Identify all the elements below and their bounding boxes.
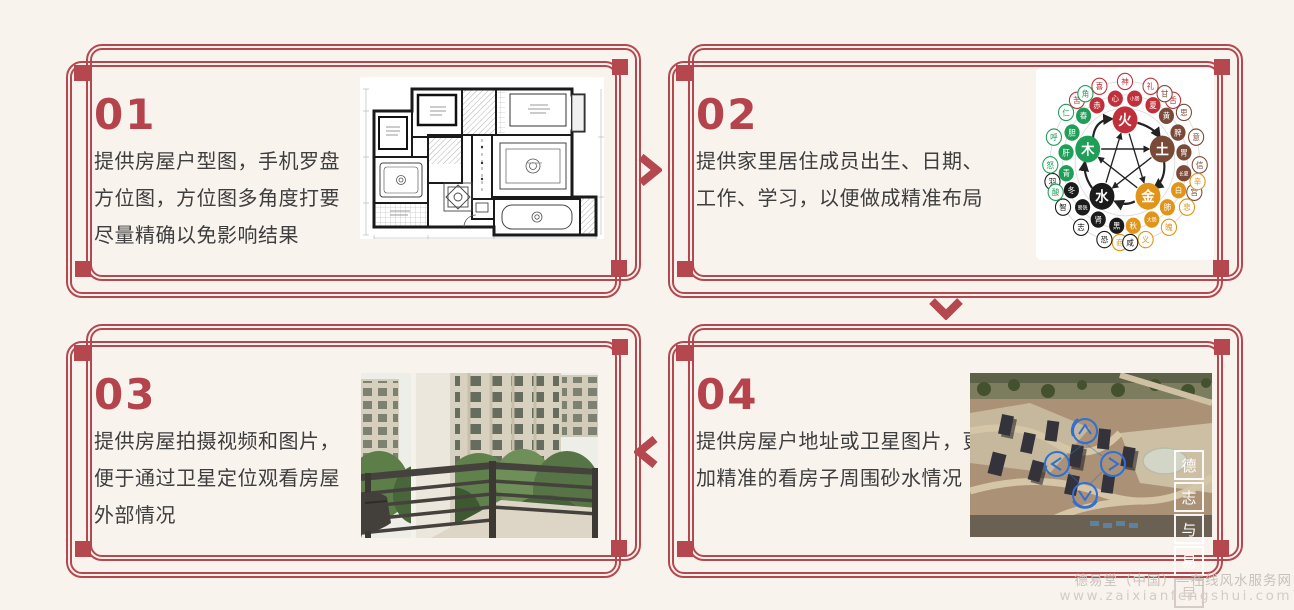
corner-square	[676, 65, 692, 81]
svg-text:春: 春	[1080, 110, 1088, 120]
corner-square	[74, 65, 90, 81]
arrow-right-icon	[636, 154, 662, 190]
corner-square	[1214, 339, 1230, 355]
svg-text:魄: 魄	[1165, 222, 1173, 232]
description-line: 提供房屋户型图，手机罗盘	[94, 143, 340, 180]
svg-text:火: 火	[1118, 113, 1131, 130]
svg-text:赤: 赤	[1093, 101, 1101, 110]
corner-square	[611, 540, 627, 556]
svg-text:小肠: 小肠	[1130, 96, 1140, 103]
svg-text:辛: 辛	[1194, 176, 1202, 186]
svg-text:恐: 恐	[1101, 235, 1109, 244]
floor-plan-image	[360, 77, 604, 239]
step-description: 提供房屋拍摄视频和图片， 便于通过卫星定位观看房屋 外部情况	[94, 423, 340, 534]
description-line: 便于通过卫星定位观看房屋	[94, 460, 340, 497]
svg-text:神: 神	[1121, 76, 1129, 86]
svg-text:膀胱: 膀胱	[1078, 204, 1088, 211]
step-number: 02	[696, 90, 758, 139]
balcony-photo	[361, 373, 598, 538]
step-card-04: 04 提供房屋户地址或卫星图片，更 加精准的看房子周围砂水情况	[668, 324, 1243, 578]
corner-square	[74, 345, 90, 361]
svg-text:甘: 甘	[1161, 88, 1169, 98]
five-elements-diagram: 苦喜神礼舌赤心小肠夏火甘思意信宫黄脾胃长夏土辛悲魄义商白肺大肠秋金咸恐志智羽黑肾…	[1036, 68, 1214, 260]
arrow-left-icon	[634, 436, 660, 472]
step-number: 03	[94, 370, 156, 419]
svg-text:喜: 喜	[1096, 81, 1104, 91]
description-line: 加精准的看房子周围砂水情况	[696, 460, 983, 497]
svg-text:悲: 悲	[1183, 202, 1191, 212]
watermark-character-box: 志	[1174, 482, 1204, 512]
svg-text:咸: 咸	[1126, 237, 1134, 247]
svg-text:信: 信	[1196, 159, 1204, 169]
svg-text:秋: 秋	[1130, 220, 1138, 230]
svg-text:木: 木	[1080, 141, 1094, 159]
svg-text:呼: 呼	[1050, 132, 1058, 142]
footer-watermark-url: www.zaixianfengshui.com	[1059, 588, 1292, 604]
watermark-character-box: 德	[1174, 450, 1204, 480]
corner-square	[1213, 260, 1229, 276]
description-line: 提供房屋拍摄视频和图片，	[94, 423, 340, 460]
svg-text:土: 土	[1156, 141, 1169, 159]
svg-text:胆: 胆	[1068, 128, 1076, 137]
description-line: 提供房屋户地址或卫星图片，更	[696, 423, 983, 460]
svg-text:青: 青	[1062, 168, 1070, 178]
footer-watermark-text: 德易堂（中国）—在线风水服务网	[1075, 569, 1293, 589]
step-description: 提供房屋户地址或卫星图片，更 加精准的看房子周围砂水情况	[696, 423, 983, 497]
svg-text:胃: 胃	[1180, 148, 1188, 157]
svg-text:肺: 肺	[1164, 203, 1172, 212]
corner-square	[612, 339, 628, 355]
svg-text:仁: 仁	[1062, 107, 1070, 117]
svg-text:黄: 黄	[1163, 110, 1171, 120]
corner-square	[75, 541, 91, 557]
svg-text:志: 志	[1077, 222, 1085, 232]
description-line: 工作、学习，以便做成精准布局	[696, 180, 983, 217]
svg-text:大肠: 大肠	[1147, 216, 1157, 223]
svg-text:思: 思	[1180, 108, 1188, 117]
description-line: 外部情况	[94, 497, 340, 534]
svg-text:酸: 酸	[1052, 187, 1060, 197]
svg-text:义: 义	[1142, 235, 1150, 244]
svg-text:怒: 怒	[1046, 159, 1054, 169]
corner-square	[677, 541, 693, 557]
svg-text:角: 角	[1082, 88, 1090, 98]
svg-text:黑: 黑	[1113, 221, 1121, 230]
corner-square	[1214, 59, 1230, 75]
corner-square	[611, 260, 627, 276]
step-number: 01	[94, 90, 156, 139]
svg-text:长夏: 长夏	[1179, 170, 1189, 177]
step-description: 提供家里居住成员出生、日期、 工作、学习，以便做成精准布局	[696, 143, 983, 217]
step-card-02: 02 提供家里居住成员出生、日期、 工作、学习，以便做成精准布局	[668, 44, 1243, 298]
corner-square	[677, 261, 693, 277]
description-line: 尽量精确以免影响结果	[94, 217, 340, 254]
svg-text:智: 智	[1059, 202, 1067, 212]
description-line: 方位图，方位图多角度打要	[94, 180, 340, 217]
svg-text:白: 白	[1175, 185, 1183, 195]
svg-text:肝: 肝	[1062, 148, 1070, 157]
step-description: 提供房屋户型图，手机罗盘 方位图，方位图多角度打要 尽量精确以免影响结果	[94, 143, 340, 254]
svg-text:金: 金	[1140, 188, 1154, 206]
watermark-character-box: 与	[1174, 514, 1204, 544]
svg-text:礼: 礼	[1147, 81, 1155, 91]
svg-text:冬: 冬	[1068, 185, 1076, 195]
svg-text:肾: 肾	[1094, 215, 1102, 224]
description-line: 提供家里居住成员出生、日期、	[696, 143, 983, 180]
svg-text:水: 水	[1095, 188, 1108, 206]
arrow-down-icon	[929, 296, 963, 324]
corner-square	[612, 59, 628, 75]
step-card-01: 01 提供房屋户型图，手机罗盘 方位图，方位图多角度打要 尽量精确以免影响结果	[66, 44, 641, 298]
corner-square	[1213, 540, 1229, 556]
step-card-03: 03 提供房屋拍摄视频和图片， 便于通过卫星定位观看房屋 外部情况	[66, 324, 641, 578]
corner-square	[676, 345, 692, 361]
svg-text:意: 意	[1192, 132, 1200, 142]
corner-square	[75, 261, 91, 277]
svg-text:心: 心	[1112, 94, 1120, 103]
svg-text:夏: 夏	[1149, 101, 1157, 110]
infographic-canvas: 01 提供房屋户型图，手机罗盘 方位图，方位图多角度打要 尽量精确以免影响结果	[0, 0, 1294, 606]
svg-text:脾: 脾	[1174, 127, 1182, 137]
step-number: 04	[696, 370, 758, 419]
